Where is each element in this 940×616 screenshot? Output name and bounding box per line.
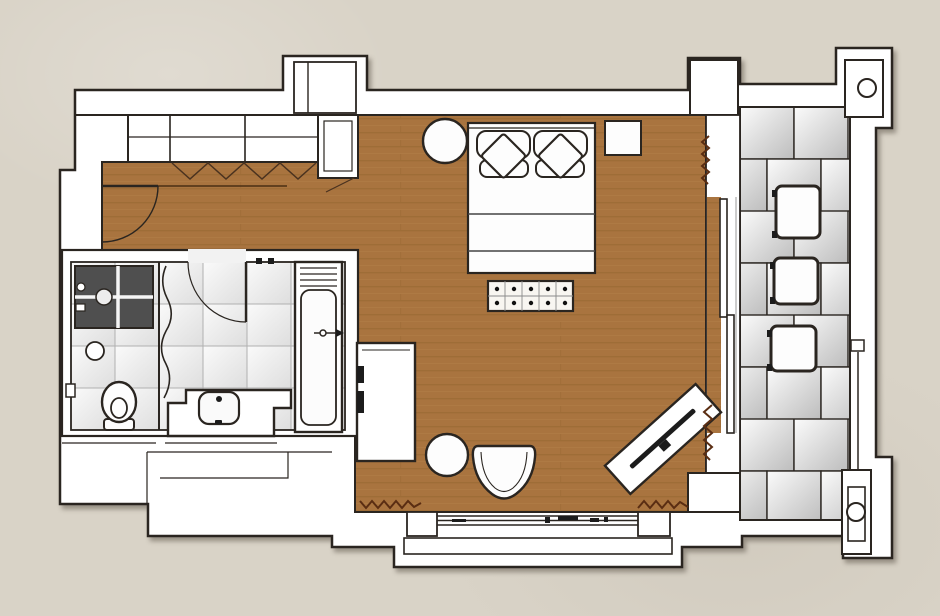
toilet [102, 382, 136, 430]
bed-end-bench [488, 281, 573, 311]
floor-plan-canvas [0, 0, 940, 616]
shower [75, 266, 153, 328]
balcony-stool-3 [767, 326, 816, 371]
sliding-balcony-door [706, 115, 740, 512]
balcony-stool-2 [770, 258, 818, 304]
nightstand [605, 121, 641, 155]
double-bed [468, 123, 595, 273]
wall-fixture-icon [66, 384, 75, 397]
duct-shaft [294, 62, 356, 113]
drain-pipe-icon [847, 503, 865, 521]
bathroom-door-opening [188, 249, 246, 263]
window-mullion-right [638, 512, 670, 536]
sliding-panel-1 [720, 199, 727, 317]
sink-vanity [168, 390, 291, 436]
column-north [690, 60, 738, 115]
toilet-paper-holder-icon [86, 342, 104, 360]
shower-head-icon [76, 304, 85, 311]
balcony-stool-1 [772, 186, 820, 238]
balcony-floor [740, 107, 850, 520]
wall-corner-block [688, 473, 740, 512]
column-north-east [845, 60, 883, 117]
shower-drain-icon [96, 289, 112, 305]
column-south-east [842, 470, 871, 554]
floor-plan-drawing [0, 0, 940, 616]
bathroom [62, 249, 358, 436]
sliding-panel-2 [727, 315, 734, 433]
round-side-table [423, 119, 467, 163]
bathtub [295, 262, 344, 432]
round-stool [426, 434, 468, 476]
drain-icon [215, 420, 222, 424]
drain-pipe-icon [858, 79, 876, 97]
window-mullion-left [407, 512, 437, 536]
desk [357, 343, 415, 461]
faucet-icon [216, 396, 222, 402]
shower-valve-icon [77, 283, 85, 291]
